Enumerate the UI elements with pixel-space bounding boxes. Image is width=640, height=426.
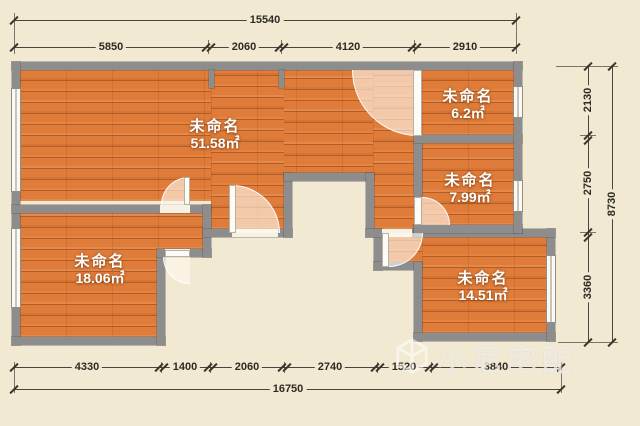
dim-bottom-seg-0: 4330	[72, 361, 102, 373]
room-area: 14.51㎡	[423, 287, 543, 303]
room-label-799: 未命名 7.99㎡	[420, 172, 520, 205]
dim-bottom-seg-2: 2060	[232, 361, 262, 373]
watermark-brand-text: 小尼宅配	[437, 336, 577, 380]
wall-top	[12, 62, 522, 70]
floor-plan-canvas: 未命名 51.58㎡ 未命名 6.2㎡ 未命名 7.99㎡ 未命名 18.06㎡…	[0, 0, 640, 426]
wall-stub-2	[279, 70, 284, 88]
room-area: 6.2㎡	[418, 105, 518, 121]
room-label-62: 未命名 6.2㎡	[418, 88, 518, 121]
dim-top-seg-2: 4120	[333, 41, 363, 53]
wall-strip-left	[366, 173, 374, 237]
door-leaf-corridor	[229, 185, 236, 233]
window-left-lower	[11, 228, 21, 308]
room-area: 18.06㎡	[40, 270, 160, 286]
dim-right-total: 8730	[606, 189, 618, 219]
room-label-1806: 未命名 18.06㎡	[40, 253, 160, 286]
watermark: 小尼宅配	[393, 336, 577, 380]
wall-1451-left	[414, 262, 422, 341]
window-room-1451	[546, 255, 556, 323]
dim-top-total: 15540	[247, 14, 284, 26]
window-left-upper	[11, 88, 21, 192]
wall-stub-1	[209, 70, 214, 88]
room-name: 未命名	[423, 270, 543, 287]
watermark-cube-icon	[393, 337, 431, 380]
dim-top-seg-1: 2060	[229, 41, 259, 53]
dim-top-seg-0: 5850	[96, 41, 126, 53]
dim-bottom-total: 16750	[270, 383, 307, 395]
room-label-1451: 未命名 14.51㎡	[423, 270, 543, 303]
wall-1806-bottom	[12, 337, 165, 345]
door-leaf-1806-top	[184, 177, 190, 205]
door-leaf-vestibule	[382, 233, 389, 267]
wall-62-799-divider	[414, 135, 522, 143]
room-name: 未命名	[418, 88, 518, 105]
dim-right-seg-1: 2750	[582, 168, 594, 198]
dim-bottom-seg-1: 1400	[170, 361, 200, 373]
room-area: 51.58㎡	[145, 135, 285, 151]
dim-right-seg-2: 3360	[582, 272, 594, 302]
door-gap-1806-top	[160, 205, 190, 213]
room-name: 未命名	[420, 172, 520, 189]
room-area: 7.99㎡	[420, 189, 520, 205]
room-label-51: 未命名 51.58㎡	[145, 118, 285, 151]
dim-bottom-seg-3: 2740	[315, 361, 345, 373]
wall-notch-top	[284, 173, 374, 181]
room-name: 未命名	[40, 253, 160, 270]
floor-room-1806-ext[interactable]	[20, 213, 203, 249]
door-leaf-1806-exit	[165, 250, 190, 257]
wall-1451-top-b	[366, 229, 382, 237]
wall-notch-left	[284, 173, 292, 237]
dim-right-seg-0: 2130	[582, 85, 594, 115]
wall-799-bottom	[414, 225, 522, 233]
dim-top-seg-3: 2910	[450, 41, 480, 53]
door-swing-1806-exit	[163, 257, 190, 284]
room-name: 未命名	[145, 118, 285, 135]
dim-line-top-segments	[14, 47, 516, 48]
